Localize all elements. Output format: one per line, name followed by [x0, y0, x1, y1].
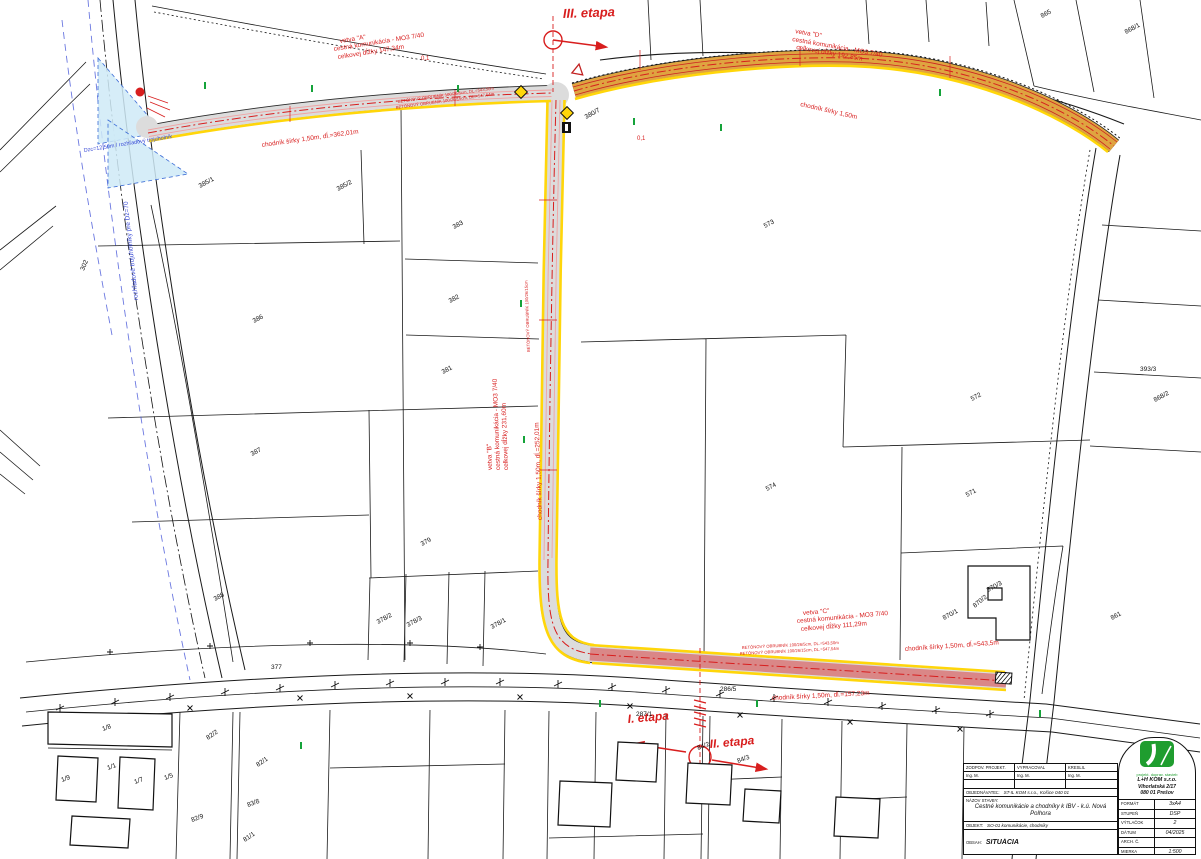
traffic-signs [515, 63, 1012, 684]
parcel-label: 861 [1110, 610, 1123, 621]
date-value: 04/2025 [1155, 829, 1195, 839]
annotation-label: chodník šírky 1,50m [800, 101, 858, 121]
buildings [48, 566, 1030, 848]
road-vetva-d-stage3 [574, 58, 1114, 146]
parcel-label: 385/1 [198, 176, 216, 190]
building [686, 763, 732, 805]
building [558, 781, 612, 827]
signature-cell [1066, 780, 1117, 788]
building [743, 789, 781, 823]
signature-cell [1015, 780, 1066, 788]
parcel-label: 388 [213, 591, 226, 602]
stage-2-label: II. etapa [709, 733, 755, 751]
utility-poles [56, 640, 994, 732]
building [70, 816, 130, 848]
sidewalk-strips [149, 66, 1108, 690]
content-label: OBSAH: [964, 839, 984, 846]
drawing-title: SITUÁCIA [984, 838, 1021, 847]
boundary-cross-marks [78, 694, 963, 732]
project-label: NÁZOV STAVBY: [964, 797, 1117, 804]
parcel-label: 302 [79, 259, 90, 272]
stage-value: DSP [1155, 810, 1195, 820]
parcel-label: 378/3 [406, 615, 424, 629]
meta-label: ARCH. Č. [1119, 838, 1155, 848]
annotation-label: vetva "B" [486, 443, 494, 470]
annotation-label: chodník šírky 1,50m, dĺ.=362,01m [261, 126, 359, 149]
bottom-road-edge [22, 701, 1200, 752]
parcel-label: 377 [271, 664, 282, 671]
building [616, 742, 658, 782]
signature-cell [964, 780, 1015, 788]
right-road-edge [1036, 155, 1120, 859]
parcel-label: 571 [965, 487, 978, 498]
object-value: SO-01 komunikácie, chodníky [985, 822, 1050, 829]
parcel-label: 82/2 [205, 728, 220, 741]
parcel-label: 386 [252, 313, 265, 324]
building [834, 797, 880, 838]
parcel-label: 387 [250, 446, 263, 457]
person-name: Ing. M. [1015, 772, 1066, 780]
parcel-label: 381 [441, 364, 454, 375]
parcel-label: 380/7 [584, 107, 602, 121]
parcel-label: 385/2 [336, 179, 354, 193]
yield-sign [572, 63, 585, 75]
parcel-label: 378/2 [376, 612, 394, 626]
situation-drawing-page: III. etapavetva "A"cestná komunikácia - … [0, 0, 1201, 859]
title-block-people: ZODPOV. PROJEKT. VYPRACOVAL KRESLIL Ing.… [964, 764, 1117, 789]
role-label: VYPRACOVAL [1015, 764, 1066, 772]
project-name: Cestné komunikácie a chodníky k IBV - k.… [964, 804, 1117, 818]
parcel-label: 573 [763, 218, 776, 229]
parcel-labels-layer: 385/1385/2383382381386387388379378/2378/… [60, 8, 1170, 843]
parcel-label: 378/1 [490, 617, 508, 631]
annotation-label: 0,1 [421, 56, 430, 62]
role-label: KRESLIL [1066, 764, 1117, 772]
parcel-label: 393/3 [1140, 366, 1157, 373]
company-city: 080 01 Prešov [1119, 790, 1195, 796]
parcel-label: 1/5 [163, 772, 174, 782]
connection-hatch [147, 96, 170, 117]
person-name: Ing. M. [964, 772, 1015, 780]
company-name: L+H KOM s.r.o. [1119, 777, 1195, 784]
investor-label: OBJEDNÁVATEĽ: [964, 789, 1002, 796]
parcel-label: 81/1 [242, 830, 257, 843]
meta-label: DÁTUM [1119, 829, 1155, 839]
connection-point [136, 88, 145, 97]
parcel-label: 83/8 [246, 798, 261, 809]
meta-label: STUPEŇ [1119, 810, 1155, 820]
new-road-fills [136, 58, 1114, 681]
parcel-label: 82/9 [190, 813, 205, 824]
road-end-hatch-bar [995, 672, 1012, 684]
annotation-label: chodník šírky 1,50m, dĺ.=543,5m [905, 637, 1000, 653]
title-block-meta: FORMÁT 3xA4 STUPEŇ DSP VÝTLAČOK 2 DÁTUM … [1119, 799, 1195, 855]
object-label: OBJEKT: [964, 822, 985, 829]
parcel-label: 286/5 [720, 686, 737, 693]
plus-marks [107, 640, 483, 655]
right-road-axis [1024, 150, 1090, 700]
meta-label: FORMÁT [1119, 800, 1155, 810]
company-logo [1119, 741, 1195, 772]
scale-value: 1:500 [1155, 848, 1195, 856]
site-plan-drawing: III. etapavetva "A"cestná komunikácia - … [0, 0, 1201, 859]
annotation-label: rozhľadové trojuholníky pre Dz=70 [123, 201, 140, 301]
parcel-label: 572 [970, 391, 983, 402]
parcel-label: 1/1 [106, 762, 117, 772]
parcel-label: 868/1 [1124, 22, 1142, 36]
stage-3-label: III. etapa [563, 4, 616, 21]
annotation-label: BETÓNOVÝ OBRUBNÍK 100/26/15cm [523, 280, 531, 352]
parcel-label: 383 [452, 219, 465, 230]
meta-label: VÝTLAČOK [1119, 819, 1155, 829]
role-label: ZODPOV. PROJEKT. [964, 764, 1015, 772]
title-block: ZODPOV. PROJEKT. VYPRACOVAL KRESLIL Ing.… [963, 763, 1118, 855]
right-road-edge [1012, 148, 1096, 859]
parcel-label: 84/3 [736, 754, 751, 765]
parcel-label: 379 [420, 536, 433, 547]
parcel-label: 870/1 [942, 608, 960, 622]
person-name: Ing. M. [1066, 772, 1117, 780]
archive-number-value [1155, 838, 1195, 848]
annotation-label: 0,1 [637, 136, 646, 142]
parcel-label: 382 [448, 293, 461, 304]
left-road-edge [135, 0, 245, 670]
parcel-label: 868/2 [1153, 390, 1171, 404]
title-block-company-panel: projekt. doprav. stavieb L+H KOM s.r.o. … [1118, 737, 1196, 855]
investor-value: ST-IL KOM s.r.o., Košice 040 01 [1002, 789, 1071, 796]
old-strip-377 [26, 644, 546, 662]
parcel-label: 82/1 [255, 755, 270, 768]
format-value: 3xA4 [1155, 800, 1195, 810]
meta-label: MIERKA [1119, 848, 1155, 856]
copy-number-value: 2 [1155, 819, 1195, 829]
junction-flare [136, 116, 158, 138]
parcel-label: 287/1 [636, 711, 653, 718]
parcel-label: 865 [1040, 8, 1053, 19]
parcel-label: 574 [765, 481, 778, 492]
